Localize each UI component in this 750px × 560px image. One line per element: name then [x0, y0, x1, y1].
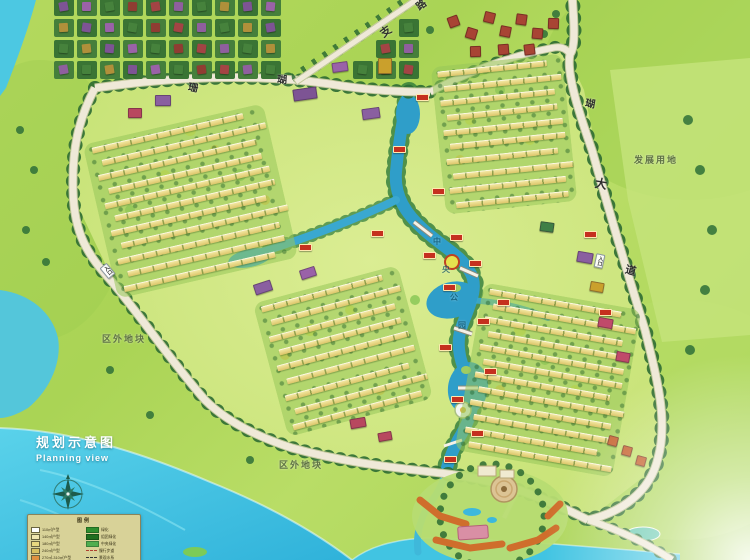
map-legend: 图例 110㎡户型140㎡户型180㎡户型240㎡户型270㎡-310㎡户型 绿… — [27, 514, 141, 560]
legend-label: 中央绿化 — [101, 541, 116, 547]
plan-title-zh: 规划示意图 — [36, 432, 116, 451]
legend-row: 组团绿化 — [86, 533, 137, 540]
legend-symbol — [31, 548, 40, 554]
legend-left-column: 110㎡户型140㎡户型180㎡户型240㎡户型270㎡-310㎡户型 — [31, 526, 82, 560]
plan-title-block: 规划示意图 Planning view — [36, 432, 116, 463]
legend-label: 组团绿化 — [101, 534, 116, 540]
master-plan-map: 珊瑚支路瑚大道入口入口区外地块区外地块发展用地中央公园 规划示意图 Planni… — [0, 0, 750, 560]
legend-swatch — [86, 550, 97, 551]
legend-swatch — [86, 527, 99, 533]
legend-row: 中央绿化 — [86, 540, 137, 547]
legend-label: 140㎡户型 — [42, 534, 60, 540]
legend-label: 270㎡-310㎡户型 — [42, 555, 71, 560]
legend-label: 绿化 — [101, 527, 109, 533]
legend-label: 慢行步道 — [99, 548, 114, 554]
legend-label: 景观水系 — [99, 555, 114, 560]
legend-right-column: 绿化组团绿化中央绿化慢行步道景观水系 — [86, 526, 137, 560]
plan-title-en: Planning view — [36, 453, 116, 463]
legend-row: 140㎡户型 — [31, 533, 82, 540]
legend-symbol — [31, 534, 40, 540]
legend-label: 110㎡户型 — [42, 527, 59, 533]
legend-row: 慢行步道 — [86, 547, 137, 554]
legend-symbol — [31, 527, 40, 533]
legend-title: 图例 — [31, 517, 137, 524]
legend-row: 景观水系 — [86, 554, 137, 560]
legend-swatch — [86, 557, 97, 558]
legend-label: 240㎡户型 — [42, 548, 60, 554]
legend-symbol — [31, 541, 40, 547]
legend-swatch — [86, 541, 99, 547]
legend-row: 270㎡-310㎡户型 — [31, 554, 82, 560]
legend-swatch — [86, 534, 99, 540]
legend-row: 绿化 — [86, 526, 137, 533]
legend-row: 110㎡户型 — [31, 526, 82, 533]
legend-label: 180㎡户型 — [42, 541, 60, 547]
legend-row: 240㎡户型 — [31, 547, 82, 554]
legend-row: 180㎡户型 — [31, 540, 82, 547]
map-artwork — [0, 0, 750, 560]
legend-symbol — [31, 555, 40, 560]
